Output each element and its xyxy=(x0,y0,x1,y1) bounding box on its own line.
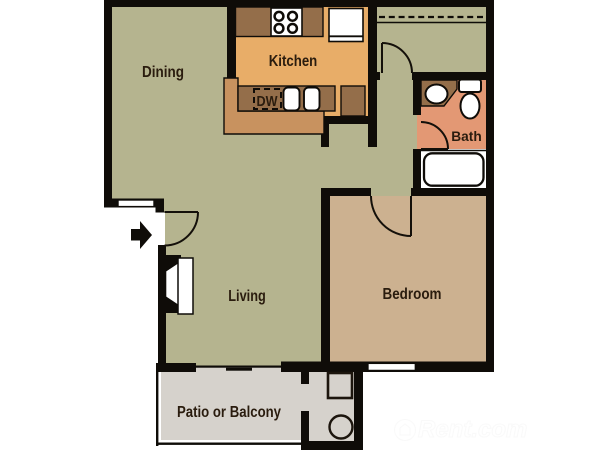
svg-text:Living: Living xyxy=(228,288,266,305)
svg-text:Kitchen: Kitchen xyxy=(269,53,318,70)
svg-text:Rent.com: Rent.com xyxy=(418,416,527,443)
svg-text:Patio or Balcony: Patio or Balcony xyxy=(177,404,281,421)
svg-text:Bedroom: Bedroom xyxy=(383,286,442,303)
svg-text:Dining: Dining xyxy=(142,64,184,81)
svg-text:Bath: Bath xyxy=(451,129,482,144)
svg-text:DW: DW xyxy=(257,94,278,110)
